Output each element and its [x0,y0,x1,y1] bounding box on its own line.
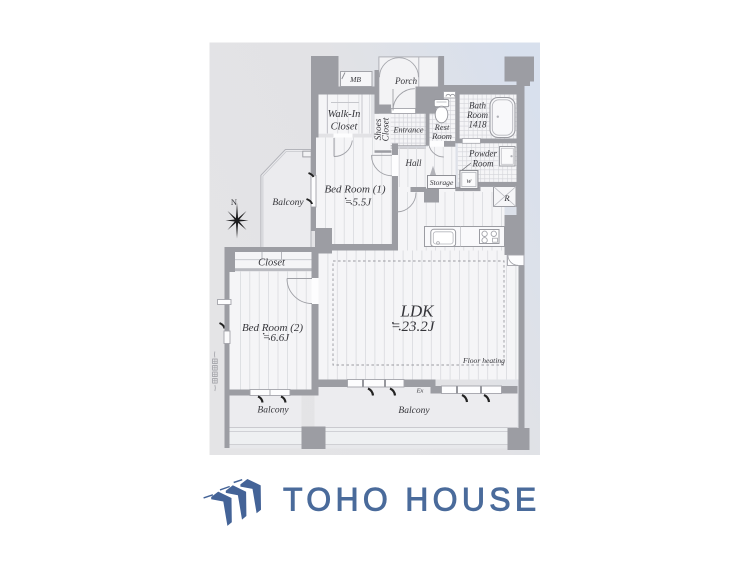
svg-text:Balcony: Balcony [272,198,304,208]
svg-text:23.2J: 23.2J [402,319,436,335]
svg-text:6.6J: 6.6J [271,332,291,344]
svg-text:Porch: Porch [394,76,418,86]
svg-text:Closet: Closet [381,117,391,141]
svg-text:Walk-In: Walk-In [328,109,361,120]
svg-text:Closet: Closet [258,257,286,268]
svg-text:TOHO HOUSE: TOHO HOUSE [283,482,541,518]
svg-text:=: = [392,319,400,335]
svg-text:Balcony: Balcony [257,406,289,416]
svg-text:5.5J: 5.5J [353,197,373,209]
svg-text:Entrance: Entrance [392,125,423,134]
svg-text:Storage: Storage [430,178,454,187]
svg-text:N: N [231,197,237,207]
svg-text:Bed Room (1): Bed Room (1) [324,184,385,196]
svg-text:Hall: Hall [404,158,422,168]
svg-text:Room: Room [466,110,488,120]
svg-text:Closet: Closet [331,122,359,133]
svg-text:R: R [503,193,510,203]
svg-text:Bath: Bath [469,100,486,110]
svg-text:Powder: Powder [468,148,497,158]
svg-text:Room: Room [472,158,494,168]
svg-text:1418: 1418 [469,119,488,129]
svg-text:Room: Room [431,131,452,141]
svg-text:MB: MB [349,75,361,84]
svg-text:Ex: Ex [416,388,424,395]
svg-text:Balcony: Balcony [398,406,430,416]
svg-text:w: w [466,176,471,185]
svg-text:Floor heating: Floor heating [462,356,505,365]
svg-text:LDK: LDK [399,302,435,321]
